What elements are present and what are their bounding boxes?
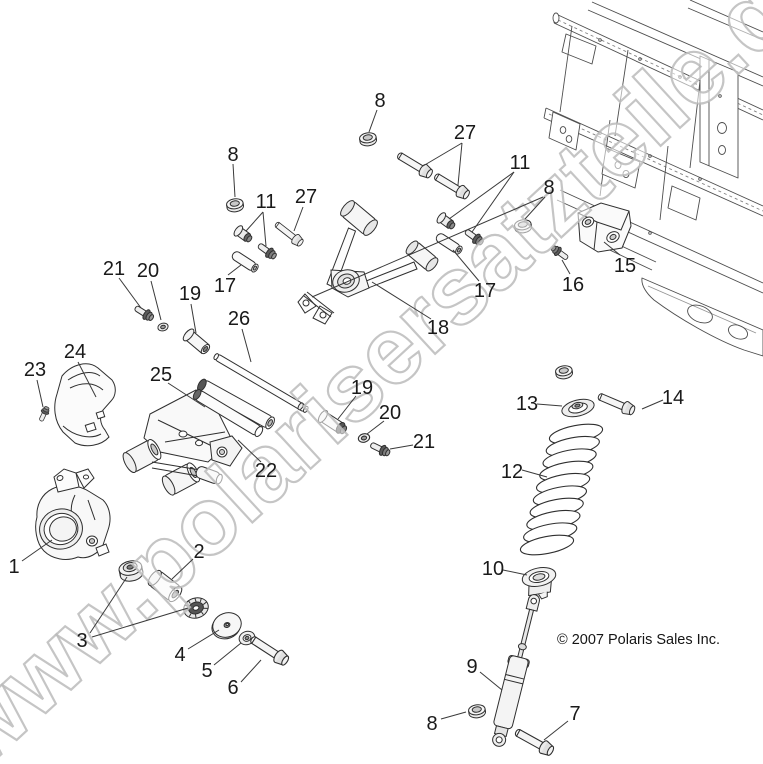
callout-19: 19: [351, 377, 373, 399]
leader-line-21: [119, 278, 141, 308]
part-flange-bolt-11b: [256, 241, 279, 262]
callout-12: 12: [501, 461, 523, 483]
part-nut-8b: [226, 198, 244, 213]
part-washer-20a: [157, 322, 169, 332]
leader-line-7: [544, 721, 568, 740]
callout-16: 16: [562, 274, 584, 296]
leader-line-4: [188, 630, 219, 649]
part-bolt-7: [513, 726, 556, 758]
copyright-text: © 2007 Polaris Sales Inc.: [557, 632, 720, 648]
callout-11: 11: [510, 152, 531, 174]
callout-27: 27: [295, 186, 317, 208]
callout-13: 13: [516, 393, 538, 415]
leader-line-8: [441, 712, 466, 719]
callout-21: 21: [103, 258, 125, 280]
leader-line-13: [537, 404, 562, 406]
part-spacer-11a: [232, 224, 254, 245]
leader-line-21: [390, 445, 413, 449]
part-spring-retainer-13: [560, 396, 596, 420]
part-nut-8d: [555, 365, 573, 380]
diagram-svg: www.polarisersatzteile.de 88112727118151…: [0, 0, 763, 764]
callout-8: 8: [227, 144, 238, 166]
part-bolt-27b: [395, 149, 435, 180]
callout-20: 20: [379, 402, 401, 424]
callout-5: 5: [201, 660, 212, 682]
part-bolt-14: [596, 390, 636, 417]
part-screw-23: [37, 405, 51, 422]
callout-23: 23: [24, 359, 46, 381]
leader-line-27: [294, 207, 303, 231]
callout-4: 4: [174, 644, 185, 666]
leader-line-23: [37, 380, 43, 407]
callout-17: 17: [214, 275, 236, 297]
callout-20: 20: [137, 260, 159, 282]
part-bolt-27c: [432, 170, 472, 201]
leader-line-16: [562, 260, 570, 274]
callout-25: 25: [150, 364, 172, 386]
leader-line-8: [233, 164, 235, 197]
callout-17: 17: [474, 280, 496, 302]
callout-18: 18: [427, 317, 449, 339]
part-nut-8e: [468, 704, 486, 719]
part-flange-bolt-21b: [369, 440, 392, 459]
part-shock-absorber-9: [487, 592, 545, 748]
callout-8: 8: [374, 90, 385, 112]
callout-6: 6: [227, 677, 238, 699]
part-spring-seat-10: [521, 565, 561, 602]
part-bushing-19a: [181, 327, 212, 356]
callout-9: 9: [466, 656, 477, 678]
part-nut-8a: [359, 132, 377, 147]
callout-19: 19: [179, 283, 201, 305]
callout-11: 11: [256, 191, 277, 213]
leader-line-27: [458, 143, 462, 185]
callout-3: 3: [76, 630, 87, 652]
callout-22: 22: [255, 460, 277, 482]
callout-2: 2: [193, 541, 204, 563]
leader-line-27: [423, 143, 462, 166]
callout-8: 8: [543, 177, 554, 199]
callout-26: 26: [228, 308, 250, 330]
leader-line-9: [480, 672, 502, 690]
callout-24: 24: [64, 341, 86, 363]
leader-line-6: [241, 660, 261, 682]
callout-21: 21: [413, 431, 435, 453]
part-bolt-6: [248, 633, 291, 668]
part-flange-bolt-21a: [133, 303, 156, 323]
leader-line-17: [228, 265, 241, 275]
callout-27: 27: [454, 122, 476, 144]
leader-line-14: [642, 400, 663, 409]
leader-line-10: [503, 570, 527, 575]
callout-14: 14: [662, 387, 684, 409]
leader-line-26: [242, 329, 251, 362]
callout-7: 7: [569, 703, 580, 725]
callout-8: 8: [426, 713, 437, 735]
callout-1: 1: [8, 556, 19, 578]
leader-line-11: [263, 212, 266, 246]
callout-15: 15: [614, 255, 636, 277]
part-coil-spring-12: [519, 421, 604, 559]
leader-line-11: [246, 212, 263, 231]
callout-10: 10: [482, 558, 504, 580]
leader-line-8: [369, 110, 377, 132]
leader-line-5: [214, 643, 241, 665]
parts-diagram-page: www.polarisersatzteile.de 88112727118151…: [0, 0, 763, 764]
part-bolt-27a: [273, 219, 305, 248]
watermark-text: www.polarisersatzteile.de: [0, 0, 763, 764]
